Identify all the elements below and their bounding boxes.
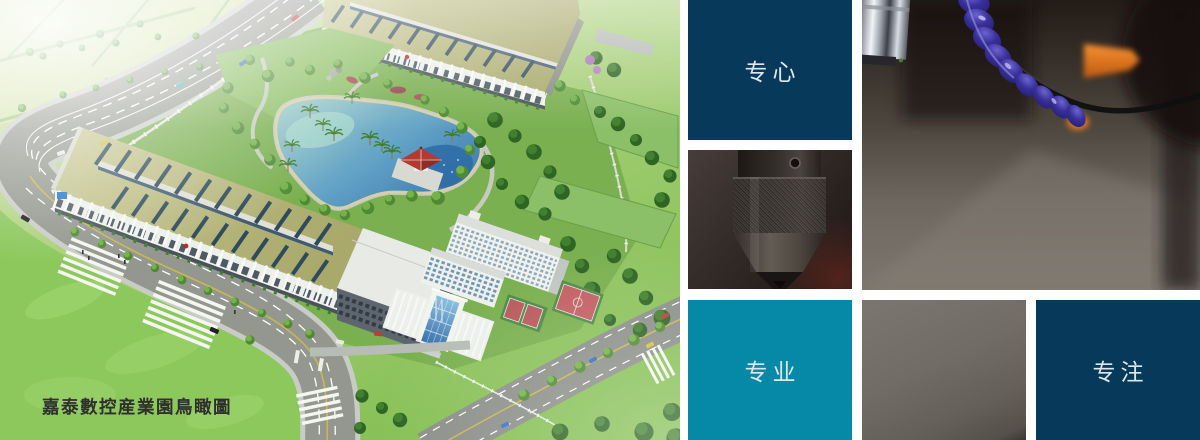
photo-drill-chuck xyxy=(688,150,852,289)
aerial-caption: 嘉泰數控産業園鳥瞰圖 xyxy=(42,394,232,419)
spindle-block xyxy=(862,0,910,67)
tile-zhuanxin-label: 专心 xyxy=(740,53,801,87)
banner: 嘉泰數控産業園鳥瞰圖 专心 xyxy=(0,0,1200,440)
aerial-illustration xyxy=(0,0,680,440)
photo-machine-surface xyxy=(862,300,1026,440)
photo-cnc-coolant-hose xyxy=(862,0,1200,290)
tile-zhuanzhu: 专注 xyxy=(1036,300,1200,440)
tile-zhuanye-label: 专业 xyxy=(740,353,801,387)
tile-zhuanzhu-label: 专注 xyxy=(1088,353,1149,387)
tile-zhuanxin: 专心 xyxy=(688,0,852,140)
tile-zhuanye: 专业 xyxy=(688,300,852,440)
corner-haze xyxy=(0,0,680,440)
aerial-photo-industrial-park: 嘉泰數控産業園鳥瞰圖 xyxy=(0,0,680,440)
